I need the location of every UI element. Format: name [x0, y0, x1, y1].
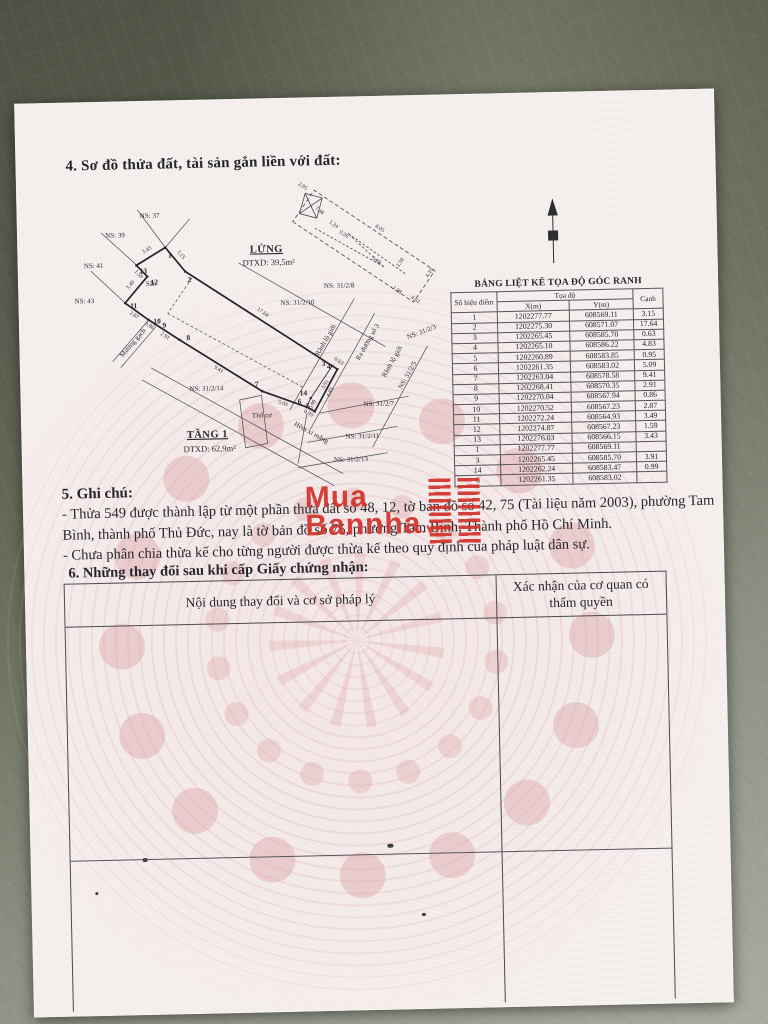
changes-row-rule [71, 848, 672, 862]
label-ns-39: NS: 39 [105, 231, 125, 239]
section4-title: 4. Sơ đồ thửa đất, tài sản gắn liền với … [65, 153, 341, 176]
coordinate-table: Số hiệu điểm Tọa độ Cạnh X(m) Y(m) 11202… [450, 288, 667, 487]
vertex-tick [314, 410, 316, 412]
diagram-labels: NS: 37 NS: 39 NS: 41 NS: 43 Sân Mương gạ… [73, 206, 441, 470]
point-number-label: 14 [300, 388, 308, 397]
certificate-page: 4. Sơ đồ thửa đất, tài sản gắn liền với … [14, 88, 734, 1017]
label-ns-41: NS: 41 [84, 262, 104, 270]
plot-polygon-layer: 3.1517.640.634.830.955.099.412.910.862.8… [123, 241, 346, 423]
label-ns-31-2-11: NS: 31/2/11 [345, 432, 379, 441]
coord-cell: 1202261.35 [501, 474, 573, 486]
coord-cell: 0.99 [637, 461, 667, 472]
vertex-tick [305, 406, 307, 408]
point-number-label: 2 [187, 275, 191, 284]
label-ns-37: NS: 37 [140, 212, 160, 220]
label-tang1: TẦNG 1 [187, 427, 228, 441]
north-arrow-icon [548, 200, 558, 263]
watermark-stripes-icon [428, 478, 483, 545]
dim-label: 0.26 [338, 229, 350, 240]
point-number-label: 1 [168, 251, 172, 260]
coord-cell: 1.59 [636, 421, 666, 432]
point-number-label: 6 [298, 397, 302, 406]
vertex-tick [124, 302, 126, 304]
point-number-label: 9 [162, 321, 166, 330]
dim-label: 8.05 [374, 224, 386, 235]
label-ns-31-2-14: NS: 31/2/14 [189, 384, 224, 393]
edge-length-label: 3.49 [125, 280, 136, 292]
label-ns-31-2-8: NS: 31/2/8 [324, 281, 355, 290]
col-header-edge: Cạnh [633, 288, 663, 309]
col-header-point: Số hiệu điểm [451, 292, 497, 313]
coord-cell: 608583.02 [573, 472, 637, 484]
label-ns-31-2-5: NS: 31/2/5 [396, 360, 418, 391]
vertex-tick [336, 368, 338, 370]
mezzanine-dimensions: 2.05 7.48 1.24 0.26 8.05 5.02 2.50 1.98 … [297, 178, 436, 308]
point-number-label: 5 [306, 401, 310, 410]
label-ranh-lo-gioi-1: Rãnh lộ giới [314, 323, 338, 357]
label-tho-cu: Thổ cư [252, 411, 272, 419]
label-lung-area: DTXD: 39,5m² [242, 257, 295, 268]
label-ranh-lo-gioi-2: Rãnh lộ giới [380, 344, 404, 378]
vertex-tick [310, 397, 312, 399]
coord-cell: 0.86 [635, 390, 665, 401]
point-number-label: 12 [151, 278, 159, 287]
coord-cell: 2.91 [635, 380, 665, 391]
coord-cell: 0.95 [634, 349, 664, 360]
edge-length-label: 3.43 [141, 245, 153, 255]
coord-cell: 4.83 [634, 339, 664, 350]
dim-label: 5.02 [370, 256, 382, 267]
point-number-label: 4 [327, 362, 331, 371]
label-lung: LỬNG [250, 243, 283, 256]
changes-column-divider [496, 575, 506, 1002]
label-ns-31-2-3: NS: 31/2/3 [406, 323, 438, 342]
dim-label: 4.02 [409, 295, 421, 306]
coord-cell: 3.91 [636, 451, 666, 462]
point-number-label: 13 [139, 266, 147, 275]
vertex-tick [184, 270, 186, 272]
edge-length-label: 3.15 [175, 249, 186, 261]
photo-of-land-certificate: { "page": { "section4_title": "4. Sơ đồ … [0, 0, 768, 1024]
coordinate-table-block: BẢNG LIỆT KÊ TỌA ĐỘ GÓC RANH Số hiệu điể… [450, 276, 670, 487]
coord-cell: 5.09 [634, 359, 664, 370]
section5-title: 5. Ghi chú: [61, 485, 133, 504]
coord-cell [637, 471, 667, 482]
mezzanine-outline [292, 188, 435, 305]
vertex-tick [178, 339, 180, 341]
point-number-label: 7 [255, 380, 259, 389]
label-ns-31-2-13: NS: 31/2/13 [334, 455, 369, 464]
vertex-tick [146, 275, 148, 277]
dim-label: 1.24 [328, 220, 340, 231]
label-ns-31-2-7: NS: 31/2/7 [363, 400, 394, 409]
point-number-label: 3 [322, 359, 326, 368]
muabannha-watermark: Mua Bannha.vn [305, 482, 486, 550]
coord-cell: 3.49 [635, 410, 665, 421]
dim-label: 4.10 [425, 267, 436, 279]
point-number-label: 8 [186, 333, 190, 342]
label-muong-gach: Mương gạch [118, 326, 148, 359]
label-tang1-area: DTXD: 62,9m² [184, 443, 237, 454]
label-ns-31-2-10: NS: 31/2/10 [280, 298, 315, 307]
coord-cell: 0.63 [634, 329, 664, 340]
vertex-tick [147, 319, 149, 321]
point-number-label: 11 [130, 301, 138, 310]
point-number-label: 10 [153, 316, 161, 325]
coord-cell [636, 441, 666, 452]
coord-cell: 17.64 [633, 319, 663, 330]
coord-cell: 2.87 [635, 400, 665, 411]
vertex-tick [261, 390, 263, 392]
vertex-tick [164, 246, 166, 248]
edge-length-label: 0.63 [333, 356, 345, 366]
vertex-tick [135, 264, 137, 266]
coord-cell: 9.41 [635, 370, 665, 381]
changes-table: Nội dung thay đổi và cơ sở pháp lý Xác n… [64, 571, 676, 1012]
changes-col2-header: Xác nhận của cơ quan có thẩm quyền [496, 572, 667, 618]
coord-cell: 3.43 [636, 431, 666, 442]
label-ns-43: NS: 43 [75, 297, 95, 305]
watermark-brand: Bannha [305, 507, 422, 543]
coord-cell: 3.15 [633, 309, 663, 320]
vertex-tick [331, 365, 333, 367]
dim-label: 2.05 [297, 181, 309, 192]
dim-label: 2.50 [395, 257, 406, 269]
